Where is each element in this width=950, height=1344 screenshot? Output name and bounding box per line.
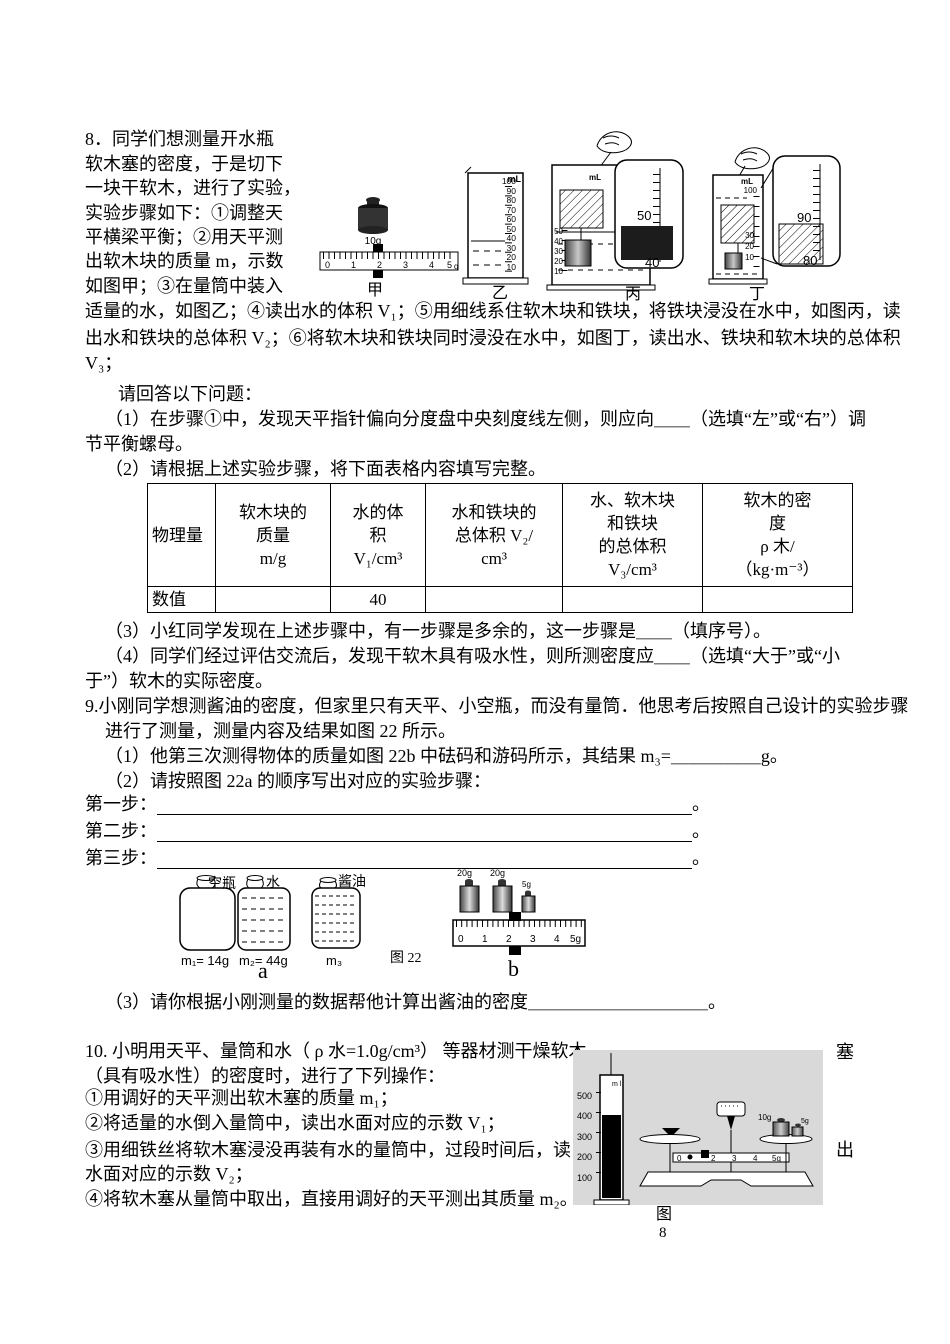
q10-step: ①用调好的天平测出软木塞的质量 m₁； [85,1087,398,1109]
period: 。 [692,847,710,869]
svg-text:mL: mL [589,173,601,182]
figure-22-caption: 图 22 [390,951,422,966]
fig-label-ding: 丁 [749,286,765,303]
svg-text:40: 40 [645,255,659,270]
q10-step: ④将软木塞从量筒中取出，直接用调好的天平测出其质量 m₂。 [85,1188,578,1210]
q8-line: 一块干软木，进行了实验， [85,177,301,199]
beam-rider [701,1150,709,1158]
period: 。 [692,793,710,815]
svg-text:5: 5 [447,260,452,270]
weight-label-5g: 5g [801,1118,809,1125]
fig-ding-inset: 90 80 [761,156,840,268]
rider-bottom [373,270,383,278]
svg-text:酱油: 酱油 [338,874,366,890]
svg-text:50: 50 [637,208,651,223]
svg-text:4: 4 [753,1154,758,1163]
cork-block [560,190,603,228]
fig-jia-weight: 10g [358,197,388,247]
q9-step-row: 第二步： 。 [85,820,710,842]
q8-line: V₃； [85,352,122,374]
fig-label-yi: 乙 [492,285,508,302]
bottle-empty: 空瓶 m₁= 14g [180,876,236,969]
svg-text:mL: mL [741,177,753,186]
page-number: 8 [659,1222,667,1244]
table-cell [216,587,331,613]
q8-figure: 10g 0 1 2 3 4 5 g 甲 mL 乙 [315,118,880,303]
q8-line: 出水和铁块的总体积 V₂；⑥将软木块和铁块同时浸没在水中，如图丁，读出水、铁块和… [85,327,901,349]
svg-text:4: 4 [429,260,434,270]
pointer [727,1116,735,1130]
rider-top [373,244,383,252]
table-cell [426,587,563,613]
q8-sub1-cont: 节平衡螺母。 [85,433,193,455]
q9-step-row: 第一步： 。 [85,793,710,815]
table-cell: 40 [331,587,426,613]
q10-step: ②将适量的水倒入量筒中，读出水面对应的示数 V₁； [85,1112,505,1134]
svg-text:80: 80 [803,253,817,268]
svg-text:空瓶: 空瓶 [208,876,236,892]
q10-line: 10. 小明用天平、量筒和水（ ρ 水=1.0g/cm³） 等器材测干燥软木 [85,1040,587,1062]
table-row-label: 数值 [148,587,216,613]
q8-prompt: 请回答以下问题： [118,383,262,405]
q8-line: 平横梁平衡；②用天平测 [85,226,283,248]
q8-sub2: （2）请根据上述实验步骤，将下面表格内容填写完整。 [105,458,546,480]
q8-sub4: （4）同学们经过评估交流后，发现干软木具有吸水性，则所测密度应＿＿（选填“大于”… [105,645,840,667]
sub-label-a: a [258,958,268,980]
bottle-water: 水 m₂= 44g [238,875,290,968]
iron-block [565,240,591,266]
q10-wrap-char: 出 [836,1139,854,1161]
q8-line: 8．同学们想测量开水瓶 [85,128,274,150]
svg-text:2: 2 [711,1154,716,1163]
table-header-cell: 水和铁块的 总体积 V₂/ cm³ [426,484,563,587]
svg-text:0: 0 [677,1154,682,1163]
fig-label-jia: 甲 [367,282,383,299]
table-header-cell: 软木块的 质量 m/g [216,484,331,587]
svg-text:2: 2 [506,934,512,945]
period: 。 [692,820,710,842]
svg-text:5g: 5g [570,934,581,945]
q10-balance [640,1102,813,1186]
yi-scale-numbers: 100 90 80 70 60 50 40 30 20 10 [490,177,516,272]
q9-sub3: （3）请你根据小刚测量的数据帮他计算出酱油的密度＿＿＿＿＿＿＿＿＿＿。 [105,991,726,1013]
q8-line: 出软木块的质量 m，示数 [85,250,284,272]
step-label: 第一步： [85,793,157,815]
q8-line: 如图甲；③在量筒中装入 [85,275,283,297]
answer-blank [157,821,692,842]
exam-page: 8．同学们想测量开水瓶 软木塞的密度，于是切下 一块干软木，进行了实验， 实验步… [0,0,950,1344]
q10-step-cont: 水面对应的示数 V₂； [85,1163,253,1185]
q9-sub1: （1）他第三次测得物体的质量如图 22b 中砝码和游码所示，其结果 m₃=＿＿＿… [105,745,788,767]
svg-text:20g: 20g [457,868,472,878]
svg-text:100: 100 [744,186,758,195]
svg-text:0: 0 [458,934,464,945]
answer-blank [157,794,692,815]
step-label: 第二步： [85,820,157,842]
weight-20g-2: 20g [490,868,512,912]
q9-sub2: （2）请按照图 22a 的顺序写出对应的实验步骤： [105,770,491,792]
svg-text:90: 90 [797,210,811,225]
q8-data-table: 物理量 软木块的 质量 m/g 水的体 积 V₁/cm³ 水和铁块的 总体积 V… [147,483,853,613]
fig-label-bing: 丙 [625,286,641,303]
svg-text:20g: 20g [490,868,505,878]
svg-text:g: g [454,262,458,271]
fig-bing-inset: 50 40 [615,160,683,270]
water-column [602,1115,621,1198]
figure-22: 空瓶 m₁= 14g 水 m₂= 44g 酱 [160,862,600,980]
svg-text:m₁= 14g: m₁= 14g [181,953,229,968]
q10-cylinder-scale: 500 400 300 200 100 [576,1086,592,1188]
q9-line: 9.小刚同学想测酱油的密度，但家里只有天平、小空瓶，而没有量筒．他思考后按照自己… [85,695,909,717]
table-header-cell: 水的体 积 V₁/cm³ [331,484,426,587]
rider-bottom [509,946,521,955]
q8-line: 适量的水，如图乙；④读出水的体积 V₁；⑤用细线系住软木块和铁块，将铁块浸没在水… [85,300,901,322]
q10-wrap-char: 塞 [836,1041,854,1063]
q10-step: ③用细铁丝将软木塞浸没再装有水的量筒中，过段时间后，读 [85,1139,571,1161]
weight-label-10g: 10g [758,1113,771,1122]
step-label: 第三步： [85,847,157,869]
svg-text:水: 水 [266,875,280,891]
q10-figure-panel: m l [573,1050,823,1205]
table-header-cell: 水、软木块 和铁块 的总体积 V₃/cm³ [563,484,703,587]
ding-scale-numbers: 30 20 10 [738,230,754,263]
svg-text:1: 1 [351,260,356,270]
table-cell [703,587,853,613]
table-header-cell: 软木的密 度 ρ 木/ （kg·m⁻³） [703,484,853,587]
svg-text:4: 4 [554,934,560,945]
beam-ruler: 0 1 2 3 4 5g [453,912,585,955]
q10-figure: m l [573,1050,823,1205]
rider-top [509,912,521,921]
svg-text:m₃: m₃ [326,953,342,968]
q8-sub1: （1）在步骤①中，发现天平指针偏向分度盘中央刻度线左侧，则应向＿＿（选填“左”或… [105,408,866,430]
svg-text:5g: 5g [772,1154,781,1163]
sub-label-b: b [508,956,519,980]
svg-text:0: 0 [325,260,330,270]
q8-line: 软木塞的密度，于是切下 [85,153,283,175]
svg-text:1: 1 [482,934,488,945]
svg-text:3: 3 [403,260,408,270]
svg-text:3: 3 [732,1154,737,1163]
weight-20g-1: 20g [457,868,479,912]
bottle-soy-sauce: 酱油 m₃ [312,874,366,968]
table-cell [563,587,703,613]
fig-jia-ruler: 0 1 2 3 4 5 g [320,244,458,278]
svg-text:5g: 5g [522,880,531,889]
q10-line: （具有吸水性）的密度时，进行了下列操作： [85,1065,445,1087]
q8-line: 实验步骤如下：①调整天 [85,202,283,224]
q9-line: 进行了测量，测量内容及结果如图 22 所示。 [105,720,456,742]
q8-sub4-cont: 于”）软木的实际密度。 [85,670,273,692]
svg-text:m l: m l [612,1081,622,1088]
bing-scale-numbers: 50 40 30 20 10 [545,227,563,277]
svg-text:3: 3 [530,934,536,945]
svg-text:2: 2 [377,260,382,270]
weight-5g: 5g [522,880,535,912]
q10-cylinder: m l [594,1053,629,1205]
q8-sub3: （3）小红同学发现在上述步骤中，有一步骤是多余的，这一步骤是＿＿（填序号）。 [105,620,771,642]
table-header-cell: 物理量 [148,484,216,587]
